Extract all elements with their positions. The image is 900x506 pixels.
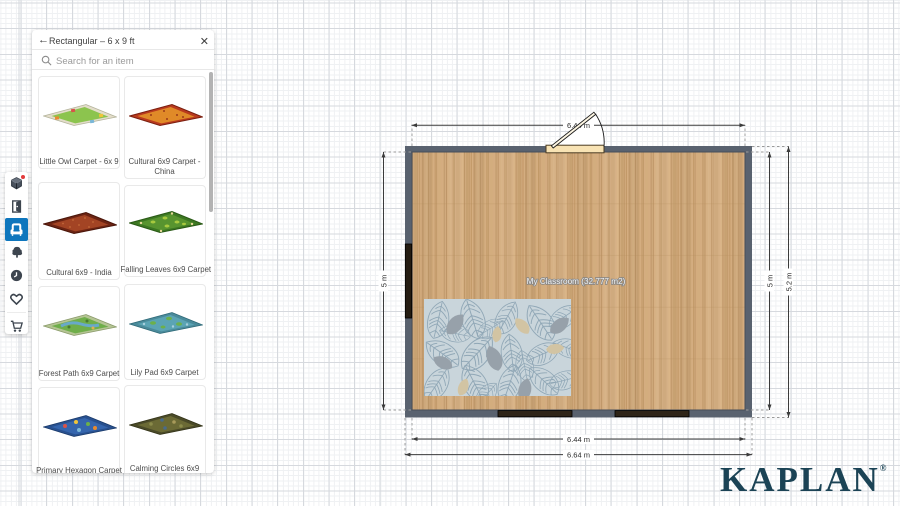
svg-text:My Classroom (32.777 m2): My Classroom (32.777 m2) [527, 277, 626, 286]
svg-text:5 m: 5 m [766, 275, 775, 288]
svg-text:6.64 m: 6.64 m [567, 451, 590, 460]
svg-text:5.2 m: 5.2 m [785, 273, 794, 292]
svg-text:5 m: 5 m [380, 275, 389, 288]
svg-text:6.44 m: 6.44 m [567, 435, 590, 444]
